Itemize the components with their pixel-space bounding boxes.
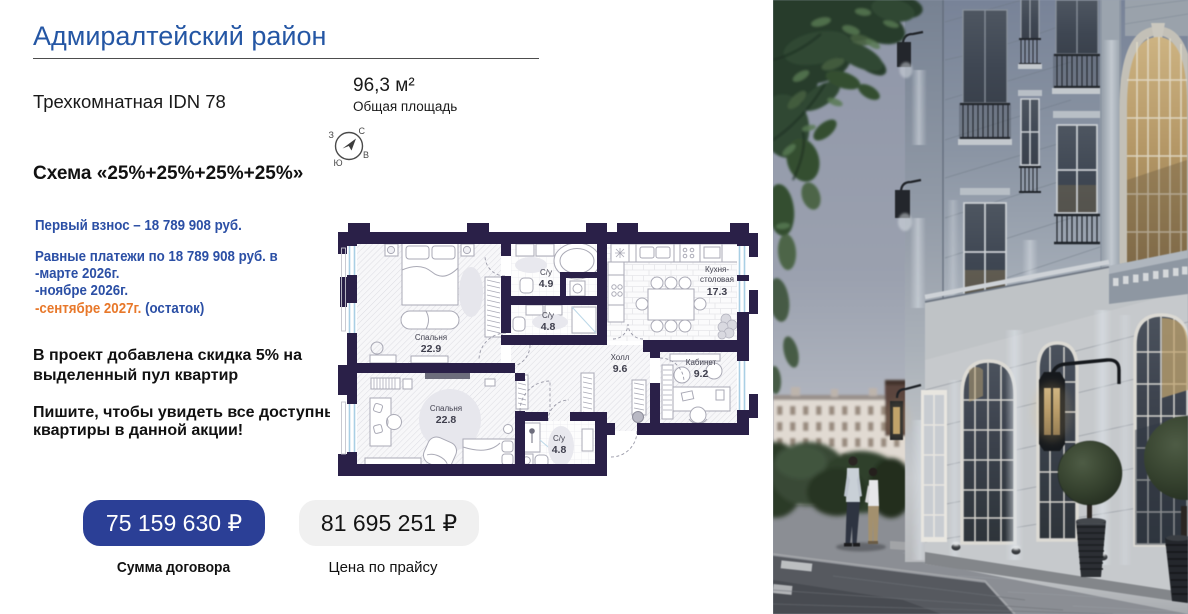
svg-text:Спальня: Спальня [415,333,447,342]
svg-text:В: В [363,150,369,160]
svg-text:С/у: С/у [553,434,565,443]
svg-text:Спальня: Спальня [430,404,462,413]
svg-text:С: С [359,126,366,136]
svg-text:С/у: С/у [542,311,554,320]
svg-text:4.8: 4.8 [541,321,556,333]
svg-text:22.9: 22.9 [421,343,442,355]
svg-text:9.6: 9.6 [613,363,628,375]
svg-text:17.3: 17.3 [707,286,728,298]
svg-text:Холл: Холл [611,353,630,362]
svg-text:З: З [329,130,334,140]
svg-text:22.8: 22.8 [436,414,457,426]
svg-text:4.9: 4.9 [539,278,554,290]
svg-text:4.8: 4.8 [552,444,567,456]
svg-text:Кабинет: Кабинет [686,358,717,367]
svg-text:Ю: Ю [334,158,343,168]
svg-text:Кухня-: Кухня- [705,265,729,274]
svg-text:9.2: 9.2 [694,368,709,380]
svg-text:С/у: С/у [540,268,552,277]
svg-text:столовая: столовая [700,275,734,284]
